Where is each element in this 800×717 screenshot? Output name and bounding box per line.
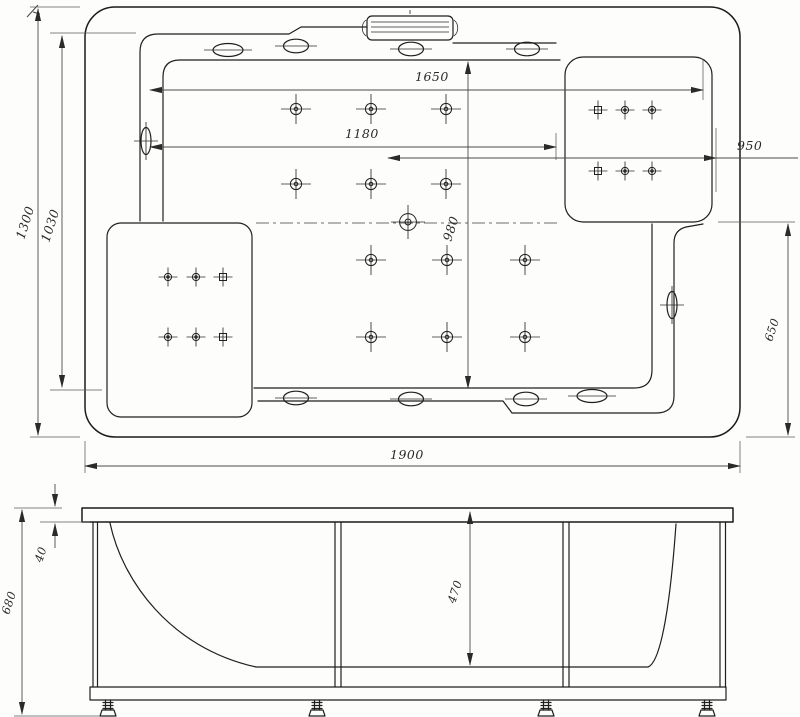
basin-edge-right xyxy=(254,224,652,388)
dim-680: 680 xyxy=(0,508,100,716)
foot-icon xyxy=(100,0,116,716)
frame-posts xyxy=(93,522,726,687)
air-control-icon xyxy=(204,44,252,57)
basin-profile xyxy=(110,523,676,667)
rim-slab xyxy=(82,508,733,522)
jet-marker xyxy=(356,322,386,352)
headrest xyxy=(362,10,458,40)
jet-nozzle-icon xyxy=(506,42,548,56)
jet-marker xyxy=(431,169,461,199)
jet-marker xyxy=(643,101,662,120)
jet-marker xyxy=(432,322,462,352)
jet-marker xyxy=(510,322,540,352)
dim-980: 980 xyxy=(440,62,468,388)
air-control-icon xyxy=(568,390,616,403)
dim-40: 40 xyxy=(31,484,90,565)
dim-label-470: 470 xyxy=(444,578,465,606)
jet-marker xyxy=(187,268,206,287)
jet-marker xyxy=(431,94,461,124)
dim-label-1180: 1180 xyxy=(345,126,379,141)
dim-label-40: 40 xyxy=(31,545,49,565)
jet-marker xyxy=(510,245,540,275)
jet-marker xyxy=(589,101,608,120)
dim-label-950: 950 xyxy=(737,138,762,153)
jet-nozzle-icon xyxy=(275,391,317,405)
dim-1650: 1650 xyxy=(150,60,703,100)
dim-label-1900: 1900 xyxy=(390,447,424,462)
jet-marker xyxy=(159,328,178,347)
jet-marker xyxy=(589,162,608,181)
jet-marker xyxy=(356,245,386,275)
jet-nozzle-icon xyxy=(134,122,158,160)
jet-marker xyxy=(616,101,635,120)
jet-marker xyxy=(187,328,206,347)
dim-950: 950 xyxy=(388,128,798,192)
dim-1030: 1030 xyxy=(38,33,136,390)
blueprint-sheet: 1650 1180 950 980 1300 1030 650 xyxy=(0,0,800,717)
dim-label-1300: 1300 xyxy=(13,204,38,241)
rim-contour-top-left xyxy=(140,27,367,221)
dim-1180: 1180 xyxy=(150,126,556,160)
jet-marker xyxy=(214,268,233,287)
rim-contour-bottom xyxy=(258,224,703,413)
jet-nozzle-icon xyxy=(505,392,547,406)
jet-marker xyxy=(643,162,662,181)
dim-label-680: 680 xyxy=(0,589,19,616)
dim-650: 650 xyxy=(718,222,795,437)
dim-1900: 1900 xyxy=(85,441,740,473)
jet-marker xyxy=(281,94,311,124)
dim-label-980: 980 xyxy=(440,214,462,243)
bottom-rail xyxy=(90,687,726,700)
side-view xyxy=(82,0,733,716)
dim-label-1650: 1650 xyxy=(415,69,449,84)
jet-marker xyxy=(356,169,386,199)
jet-marker xyxy=(616,162,635,181)
foot-icon xyxy=(309,0,325,716)
jet-nozzle-icon xyxy=(275,39,317,53)
jet-marker xyxy=(281,169,311,199)
dim-label-650: 650 xyxy=(762,316,783,343)
jet-nozzle-icon xyxy=(660,286,684,324)
jet-marker xyxy=(159,268,178,287)
jet-nozzle-icon xyxy=(390,392,432,406)
dim-470: 470 xyxy=(444,512,470,665)
jet-marker xyxy=(214,328,233,347)
left-seat xyxy=(107,223,252,417)
bathtub-technical-drawing: 1650 1180 950 980 1300 1030 650 xyxy=(0,0,800,717)
jet-marker xyxy=(356,94,386,124)
right-seat xyxy=(565,57,712,222)
plan-view xyxy=(85,7,740,437)
jet-nozzle-icon xyxy=(390,42,432,56)
drain-marker xyxy=(391,205,425,239)
dim-label-1030: 1030 xyxy=(38,207,63,244)
foot-icon xyxy=(538,0,554,716)
jet-marker xyxy=(432,245,462,275)
